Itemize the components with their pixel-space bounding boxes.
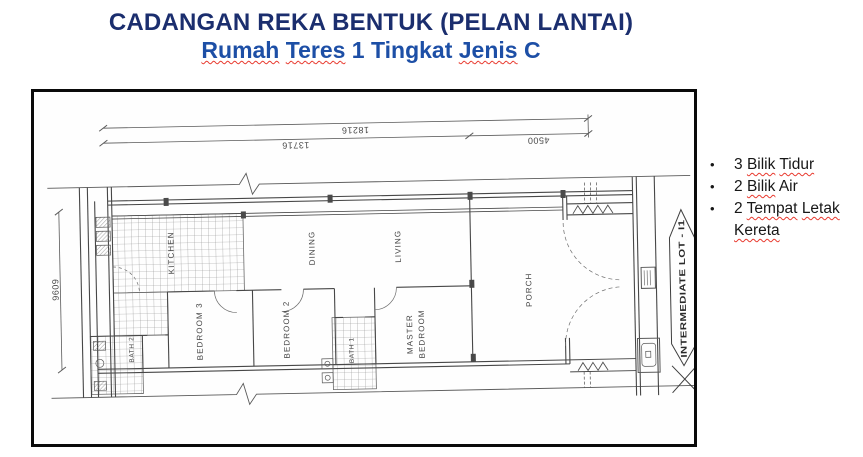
room-label-dining: DINING <box>307 231 317 266</box>
dim-label-right-segment: 4500 <box>527 135 549 145</box>
room-label-bath2: BATH 2 <box>128 337 136 363</box>
dim-label-depth: 6096 <box>50 279 60 301</box>
title-line-1: CADANGAN REKA BENTUK (PELAN LANTAI) <box>0 9 742 37</box>
lot-label: INTERMEDIATE LOT - I1 <box>676 220 689 358</box>
feature-list: • 3 Bilik Tidur • 2 Bilik Air • 2 Tempat… <box>705 154 861 242</box>
list-item: • 3 Bilik Tidur <box>705 154 861 176</box>
room-label-porch: PORCH <box>524 272 534 307</box>
gate-symbols <box>572 182 616 388</box>
floor-plan-drawing: 18216 13716 4500 6096 <box>34 92 694 444</box>
title-word: Rumah <box>201 37 279 63</box>
list-item-text: 3 Bilik Tidur <box>734 154 861 176</box>
bullet-icon: • <box>705 154 734 176</box>
list-item: • 2 Tempat Letak Kereta <box>705 198 861 242</box>
room-label-bath1: BATH 1 <box>348 337 356 363</box>
dim-label-left-segment: 13716 <box>282 140 310 151</box>
floor-plan-frame: 18216 13716 4500 6096 <box>31 89 697 447</box>
title-word: Teres <box>286 37 346 63</box>
dim-label-total: 18216 <box>341 125 369 136</box>
room-label-master-1: MASTER <box>405 314 415 354</box>
list-item-text: 2 Bilik Air <box>734 176 861 198</box>
room-label-master-2: BEDROOM <box>417 309 427 358</box>
bullet-icon: • <box>705 176 734 198</box>
room-label-living: LIVING <box>393 230 403 263</box>
title-word: Jenis <box>459 37 518 63</box>
room-label-bedroom3: BEDROOM 3 <box>195 302 205 360</box>
title-line-2: Rumah Teres 1 Tingkat Jenis C <box>0 37 742 64</box>
list-item-text: 2 Tempat Letak Kereta <box>734 198 861 242</box>
list-item: • 2 Bilik Air <box>705 176 861 198</box>
bullet-icon: • <box>705 198 734 242</box>
room-label-bedroom2: BEDROOM 2 <box>282 301 292 359</box>
slide-title: CADANGAN REKA BENTUK (PELAN LANTAI) Ruma… <box>0 9 742 64</box>
room-label-kitchen: KITCHEN <box>166 231 176 274</box>
